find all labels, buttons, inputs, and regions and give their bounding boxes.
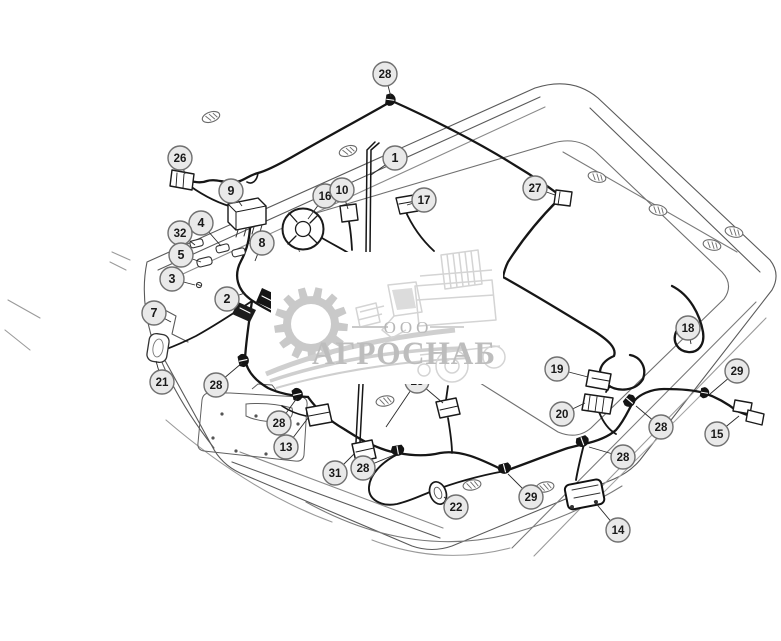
callout-marker[interactable]: 20 — [550, 402, 585, 426]
callout-number: 19 — [551, 364, 564, 376]
watermark: ООО АГРОСНАБ — [266, 250, 505, 388]
parts-diagram-canvas: 23 ООО АГРОСНАБ — [0, 0, 781, 641]
callout-number: 22 — [450, 502, 463, 514]
callout-number: 17 — [418, 195, 431, 207]
callout-number: 15 — [711, 429, 724, 441]
callout-number: 26 — [174, 153, 187, 165]
callout-marker[interactable]: 22 — [444, 495, 468, 519]
harness-bottom-run — [308, 397, 505, 471]
callout-number: 28 — [357, 463, 370, 475]
callout-number: 32 — [174, 228, 187, 240]
callout-marker[interactable]: 18 — [676, 316, 700, 344]
watermark-company-name: АГРОСНАБ — [312, 336, 496, 372]
harness-center-right-run — [503, 277, 644, 390]
callout-number: 28 — [617, 452, 630, 464]
callout-marker[interactable]: 14 — [594, 501, 630, 542]
callout-number: 21 — [156, 377, 169, 389]
connector-part23-hidden — [436, 398, 460, 418]
callout-marker[interactable]: 28 — [373, 62, 397, 97]
connector-part15 — [733, 400, 764, 425]
callout-number: 1 — [392, 151, 399, 165]
connector-part13 — [306, 404, 332, 426]
callout-number: 29 — [731, 366, 744, 378]
speaker-part14 — [564, 479, 605, 511]
watermark-company-prefix: ООО — [384, 318, 433, 337]
speaker-part16 — [283, 209, 324, 250]
clip-part21 — [146, 333, 170, 364]
parts-diagram-page: 23 ООО АГРОСНАБ — [0, 0, 781, 641]
callout-number: 29 — [525, 492, 538, 504]
callout-number: 18 — [682, 323, 695, 335]
callout-number: 5 — [178, 248, 185, 262]
callout-number: 28 — [210, 380, 223, 392]
callout-number: 9 — [228, 184, 235, 198]
callout-marker[interactable]: 31 — [323, 454, 354, 485]
callout-number: 20 — [556, 409, 569, 421]
callout-number: 28 — [379, 69, 392, 81]
callout-marker[interactable]: 28 — [636, 406, 673, 439]
callout-number: 4 — [198, 216, 205, 230]
callout-number: 31 — [329, 468, 342, 480]
connector-part27 — [554, 190, 572, 206]
connector-part20 — [582, 394, 613, 414]
callout-marker[interactable]: 7 — [142, 301, 171, 325]
callout-number: 28 — [655, 422, 668, 434]
callout-marker[interactable]: 29 — [508, 474, 543, 509]
callout-number: 2 — [224, 292, 231, 306]
callout-number: 3 — [169, 272, 176, 286]
callout-marker[interactable]: 28 — [267, 398, 297, 435]
callout-marker[interactable]: 28 — [204, 363, 242, 397]
callout-marker[interactable]: 19 — [545, 357, 588, 381]
callout-number: 8 — [259, 236, 266, 250]
callout-number: 14 — [612, 525, 625, 537]
callout-marker[interactable]: 28 — [589, 445, 635, 469]
callout-number: 16 — [319, 191, 332, 203]
callout-marker[interactable]: 9 — [219, 179, 243, 206]
callout-number: 13 — [280, 442, 293, 454]
connector-part26 — [170, 170, 194, 190]
callout-number: 27 — [529, 183, 542, 195]
callout-marker[interactable]: 21 — [150, 361, 174, 394]
callout-number: 7 — [151, 306, 158, 320]
connector-part10 — [340, 204, 358, 222]
callout-number: 28 — [273, 418, 286, 430]
callout-marker[interactable]: 1 — [371, 146, 407, 175]
callout-number: 10 — [336, 185, 349, 197]
callout-marker[interactable]: 15 — [705, 416, 739, 446]
callout-marker[interactable]: 29 — [710, 359, 749, 394]
callout-marker[interactable]: 8 — [250, 231, 274, 261]
connector-part19 — [586, 370, 611, 390]
